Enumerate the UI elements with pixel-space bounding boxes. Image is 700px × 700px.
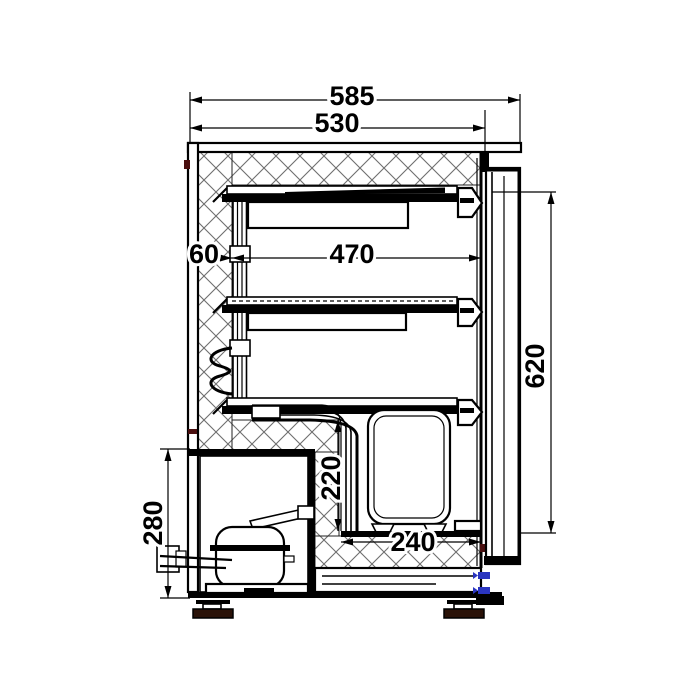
dim-compressor-compartment-height: 280 bbox=[138, 449, 190, 598]
drawing-canvas: 585 530 60 470 620 bbox=[0, 0, 700, 700]
door-bottom-cap bbox=[484, 556, 521, 565]
bottom-hinge bbox=[476, 596, 504, 605]
dim-body-depth: 530 bbox=[190, 108, 485, 138]
tube-clamp-bend bbox=[252, 406, 280, 418]
dim-door-height-label: 620 bbox=[520, 343, 550, 388]
vent-frame bbox=[315, 568, 481, 592]
accent-mark-mid bbox=[188, 429, 197, 434]
dim-step-height-label: 220 bbox=[316, 455, 346, 500]
dim-wall-thickness-label: 60 bbox=[189, 239, 219, 269]
shelf-top bbox=[213, 186, 482, 228]
back-wall bbox=[188, 143, 198, 592]
floor-step bbox=[455, 521, 481, 531]
refrigeration-unit-section-drawing: 585 530 60 470 620 bbox=[0, 0, 700, 700]
dim-interior-depth-label: 470 bbox=[329, 239, 374, 269]
shelf-middle bbox=[213, 297, 482, 330]
accent-mark-low bbox=[480, 544, 485, 552]
base-plate bbox=[188, 592, 502, 598]
dim-body-depth-label: 530 bbox=[314, 108, 359, 138]
foot-left bbox=[193, 600, 233, 618]
top-panel bbox=[188, 143, 521, 152]
accent-mark-top bbox=[184, 160, 190, 169]
dim-compressor-compartment-height-label: 280 bbox=[138, 500, 168, 545]
compressor-body bbox=[216, 527, 284, 587]
dim-overall-depth-label: 585 bbox=[329, 81, 374, 111]
door-slab bbox=[486, 168, 520, 564]
dim-overall-depth: 585 bbox=[190, 81, 520, 111]
tube-clamp-lower bbox=[230, 340, 250, 356]
compartment-top-wall bbox=[188, 449, 315, 456]
dim-step-depth-label: 240 bbox=[390, 527, 435, 557]
